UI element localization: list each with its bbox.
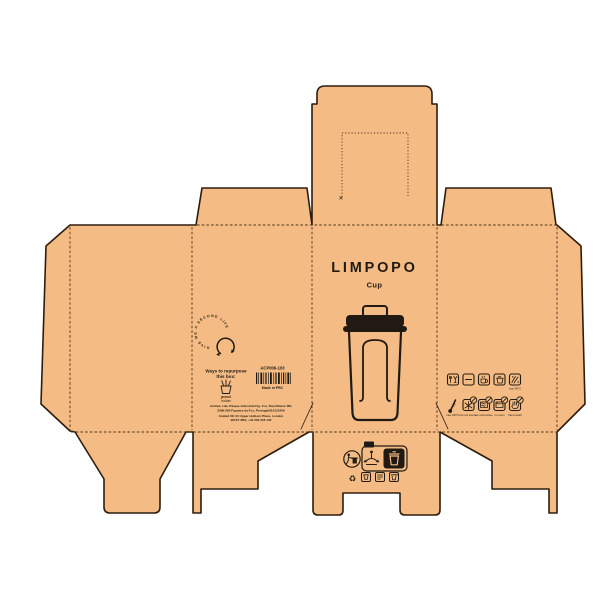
care-row2-label-1: max 100°C xyxy=(446,413,460,417)
address-line-4: WC1V 6BX, +44 203 318 102 xyxy=(231,418,272,422)
care-row2-label-5: hand wash xyxy=(508,413,522,417)
barcode-icon xyxy=(256,373,291,385)
dieline-outline xyxy=(41,86,585,515)
sku-code: ACP006-103 xyxy=(260,366,285,371)
brand-subtitle: Cup xyxy=(367,281,383,290)
fr-tag: FR xyxy=(367,443,372,447)
care-row2-label-4: no oven xyxy=(495,413,505,417)
mobius-loop-icon: ♻ xyxy=(349,474,357,484)
made-in-label: Made in PRC xyxy=(262,386,284,390)
cross-mark: ✕ xyxy=(338,196,343,202)
address-line-2: 3090-380 Figueira da Foz, Portugal/91012… xyxy=(217,408,285,412)
brand-title: LIMPOPO xyxy=(331,260,417,276)
idea-label-line2: holder xyxy=(221,399,231,403)
care-row1-label-5: max 90°C xyxy=(509,387,521,391)
dieline-canvas: ✕ LIMPOPO Cup GIVE ME A SECOND LIFE Ways xyxy=(0,0,600,600)
packaging-dieline: ✕ LIMPOPO Cup GIVE ME A SECOND LIFE Ways xyxy=(0,0,600,600)
repurpose-heading-line2: this box: xyxy=(216,374,236,379)
care-row2-label-3: no microwave xyxy=(475,413,493,417)
repurpose-heading-line1: Ways to repurpose xyxy=(205,369,247,374)
